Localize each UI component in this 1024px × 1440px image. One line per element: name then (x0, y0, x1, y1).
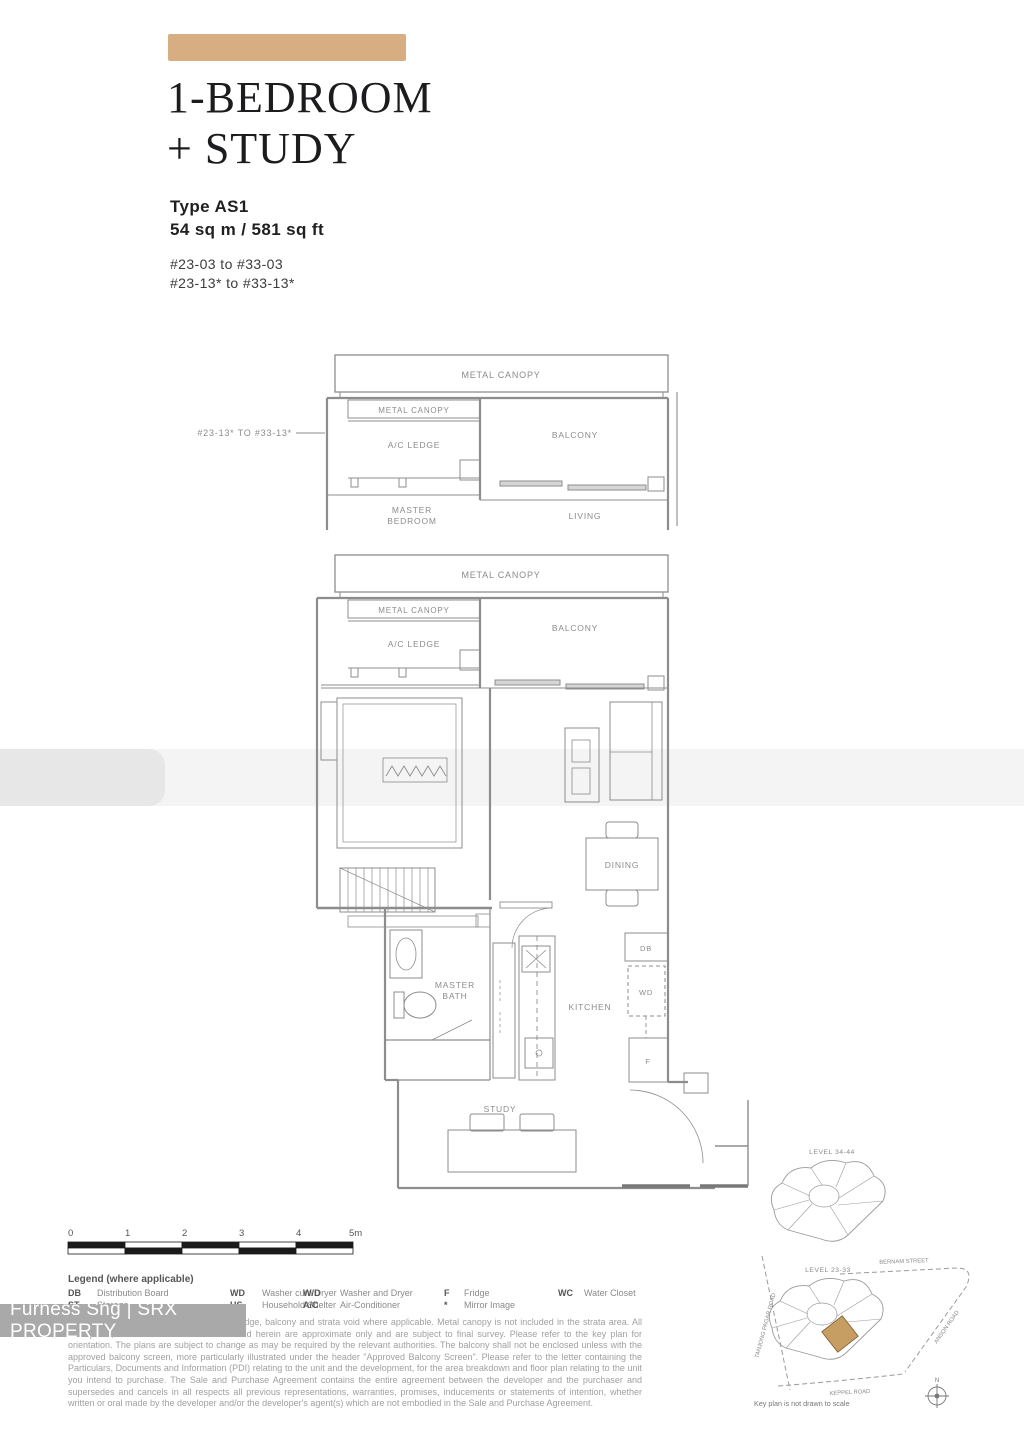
legend-label-hs: Household Shelter (262, 1300, 336, 1310)
wd-label: WD (639, 988, 653, 997)
keyplan-road-bernam: BERNAM STREET (879, 1258, 929, 1266)
db-label: DB (640, 944, 652, 953)
main-balcony-label: BALCONY (552, 623, 598, 633)
legend-label-wad: Washer and Dryer (340, 1288, 413, 1298)
upper-metal-canopy-outer-label: METAL CANOPY (461, 370, 540, 380)
dining-label: DINING (605, 860, 640, 870)
study-label: STUDY (484, 1104, 517, 1114)
title-line1: 1-BEDROOM (167, 72, 587, 123)
legend-abbr-wd: WD (230, 1288, 245, 1298)
keyplan-note: Key plan is not drawn to scale (754, 1399, 850, 1408)
key-plan: LEVEL 34-44 LEVEL 23-33 BERNAM STREET AN… (752, 1138, 1014, 1428)
kitchen-label: KITCHEN (569, 1002, 612, 1012)
unit-area: 54 sq m / 581 sq ft (170, 220, 324, 240)
legend-label-wd: Washer cum Dryer (262, 1288, 337, 1298)
legend-label-f: Fridge (464, 1288, 490, 1298)
floor-plan-drawing: METAL CANOPY METAL CANOPY A/C LEDGE BALC… (170, 340, 770, 1210)
unit-range-2: #23-13* to #33-13* (170, 275, 295, 291)
keyplan-level-upper: LEVEL 34-44 (809, 1149, 855, 1156)
keyplan-road-tanjong-pagar: TANJONG PAGAR ROAD (754, 1293, 777, 1359)
main-ac-ledge-label: A/C LEDGE (388, 639, 441, 649)
upper-metal-canopy-inner-label: METAL CANOPY (378, 406, 449, 415)
accent-bar (168, 34, 406, 61)
keyplan-road-keppel: KEPPEL ROAD (829, 1389, 870, 1397)
scale-tick-4: 4 (296, 1228, 301, 1239)
legend-abbr-ac: A/C (303, 1300, 319, 1310)
scale-tick-0: 0 (68, 1228, 73, 1239)
upper-plan-callout: #23-13* TO #33-13* (197, 428, 292, 438)
legend-abbr-db: DB (68, 1288, 81, 1298)
unit-range-1: #23-03 to #33-03 (170, 256, 283, 272)
legend-abbr-wad: W/D (303, 1288, 321, 1298)
floorplan-page: 1-BEDROOM + STUDY Type AS1 54 sq m / 581… (0, 0, 1024, 1440)
upper-master-bedroom-label-1: MASTER (392, 505, 432, 515)
watermark-band-cap (0, 749, 165, 806)
north-compass-icon: N (925, 1378, 949, 1408)
upper-master-bedroom-label-2: BEDROOM (387, 516, 437, 526)
scale-tick-3: 3 (239, 1228, 244, 1239)
legend-label-wc: Water Closet (584, 1288, 636, 1298)
main-metal-canopy-inner-label: METAL CANOPY (378, 606, 449, 615)
upper-balcony-label: BALCONY (552, 430, 598, 440)
keyplan-level-lower: LEVEL 23-33 (805, 1267, 851, 1274)
fridge-label: F (645, 1057, 650, 1066)
legend-abbr-mirror: * (444, 1300, 448, 1310)
unit-type: Type AS1 (170, 197, 249, 217)
master-bath-label-1: MASTER (435, 980, 475, 990)
legend-abbr-wc: WC (558, 1288, 573, 1298)
page-title: 1-BEDROOM + STUDY (167, 72, 587, 174)
scale-tick-5: 5m (349, 1228, 362, 1239)
legend-label-mirror: Mirror Image (464, 1300, 515, 1310)
upper-ac-ledge-label: A/C LEDGE (388, 440, 441, 450)
main-metal-canopy-outer-label: METAL CANOPY (461, 570, 540, 580)
watermark-text: Furness Sng | SRX PROPERTY (10, 1299, 246, 1343)
legend-abbr-f: F (444, 1288, 450, 1298)
watermark-box: Furness Sng | SRX PROPERTY (0, 1304, 246, 1337)
scale-tick-2: 2 (182, 1228, 187, 1239)
keyplan-road-anson: ANSON ROAD (934, 1310, 961, 1345)
title-line2: + STUDY (167, 123, 587, 174)
legend-label-db: Distribution Board (97, 1288, 169, 1298)
scale-bar: 0 1 2 3 4 5m (66, 1226, 376, 1268)
scale-tick-1: 1 (125, 1228, 130, 1239)
master-bath-label-2: BATH (442, 991, 467, 1001)
upper-living-label: LIVING (569, 511, 602, 521)
scale-bar-segments (68, 1242, 353, 1254)
legend-label-ac: Air-Conditioner (340, 1300, 400, 1310)
north-label: N (935, 1378, 939, 1384)
legend-title: Legend (where applicable) (68, 1274, 194, 1285)
